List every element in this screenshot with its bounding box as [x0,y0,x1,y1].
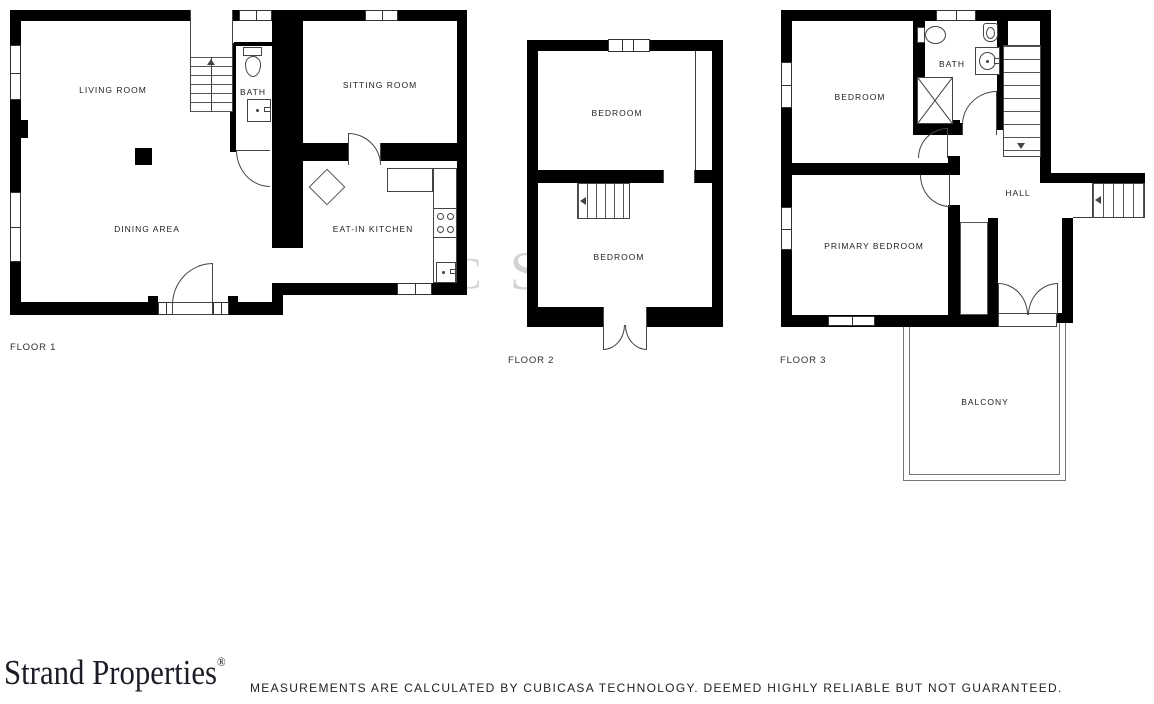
closet [960,222,988,315]
wall-segment [272,283,283,303]
room-label-sitting-room: SITTING ROOM [343,80,417,90]
floor-label-3: FLOOR 3 [780,355,826,366]
staircase [1003,45,1041,157]
door-swing [172,263,213,305]
door-swing [962,91,997,125]
wall-segment [948,156,960,175]
window [239,10,272,21]
wall-segment [228,296,238,302]
door-threshold [998,313,1057,327]
wall-segment [1040,173,1145,183]
stair-direction-up-icon [207,59,215,65]
kitchen-counter [387,168,433,192]
stair-direction-down-icon [1017,143,1025,149]
wall-segment [781,10,1051,21]
window [608,39,650,52]
wall-segment [1040,21,1051,178]
wall-segment [234,42,272,46]
shower-x-icon [918,78,952,123]
burner-icon [437,213,444,220]
room-label-bedroom: BEDROOM [594,252,645,262]
faucet [994,58,1000,64]
wall-segment [695,170,712,183]
sink-drain-dot [256,109,259,112]
window [936,10,976,21]
wall-segment [381,143,457,161]
faucet [450,269,456,274]
french-door-swing [625,325,647,350]
wall-segment [988,218,998,315]
wall-segment [303,143,348,161]
room-label-primary-bedroom: PRIMARY BEDROOM [824,241,924,251]
wall-segment [781,315,998,327]
room-label-bath: BATH [939,59,965,69]
toilet-tank [243,47,262,56]
room-label-bedroom: BEDROOM [835,92,886,102]
wall-segment [1062,218,1073,323]
faucet [264,107,271,112]
wall-segment [272,21,303,248]
room-label-balcony: BALCONY [961,397,1009,407]
wall-segment [457,21,467,295]
window [10,192,21,262]
plans-layer: LIVING ROOM BATH SITTING ROOM DINING ARE… [0,0,1154,704]
window [158,302,173,315]
partition-line [695,51,696,170]
shower [917,77,953,124]
wall-segment [10,120,28,138]
room-label-dining-area: DINING AREA [114,224,180,234]
wall-segment [948,218,960,315]
floor-label-1: FLOOR 1 [10,342,56,353]
toilet-bowl [245,56,261,77]
sink-drain-dot [442,271,445,274]
french-door-swing [603,325,625,350]
wall-segment [148,296,158,302]
wall-segment [527,170,663,183]
door-swing [348,133,381,165]
door-swing [236,150,270,187]
chimney-block [135,148,152,165]
bidet-basin [986,27,995,39]
wall-segment [781,163,948,175]
stair-direction-left-icon [580,197,586,205]
door-swing [920,175,950,207]
doorway-opening [663,170,695,183]
dining-table [309,169,346,206]
burner-icon [447,226,454,233]
window [828,316,875,326]
room-label-living-room: LIVING ROOM [79,85,147,95]
wall-segment [527,51,538,327]
french-door-swing [998,283,1028,315]
room-label-hall: HALL [1005,188,1030,198]
window [781,62,792,108]
burner-icon [447,213,454,220]
window [365,10,398,21]
wall-segment [712,51,723,327]
window [781,207,792,250]
window [10,45,21,100]
stove [433,208,457,238]
french-door-swing [1028,283,1058,315]
floor-label-2: FLOOR 2 [508,355,554,366]
room-label-bedroom: BEDROOM [592,108,643,118]
door-threshold [603,307,647,327]
window [213,302,229,315]
wall-segment [10,302,283,315]
burner-icon [437,226,444,233]
toilet-tank [917,27,925,43]
window [397,283,432,295]
room-label-bath: BATH [240,87,266,97]
toilet-bowl [925,26,946,44]
room-label-kitchen: EAT-IN KITCHEN [333,224,413,234]
stair-direction-left-icon [1095,196,1101,204]
stair-rail-line [211,57,212,112]
floor-plan-page: C S LIVING ROOM [0,0,1154,704]
sink-drain-dot [986,60,989,63]
